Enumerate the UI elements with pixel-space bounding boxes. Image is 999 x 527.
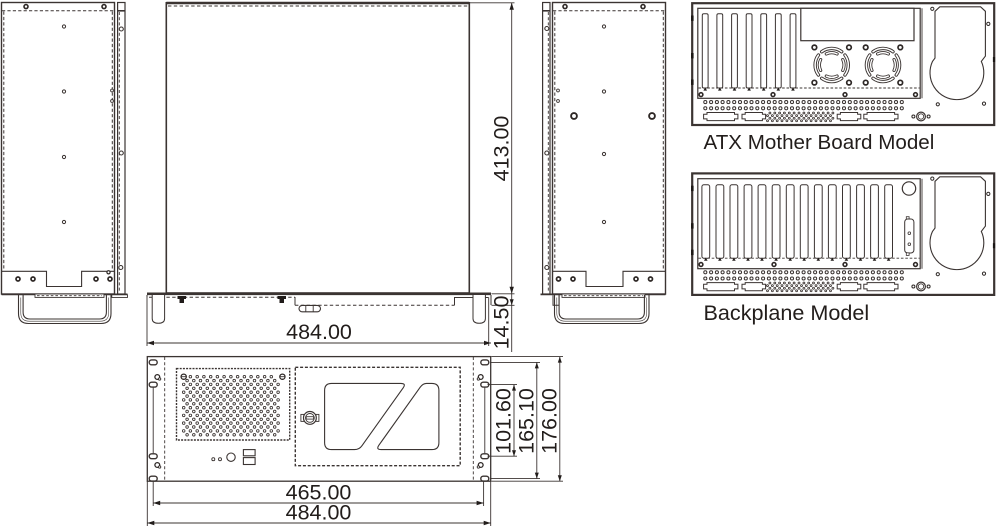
- svg-text:ATX Mother Board Model: ATX Mother Board Model: [704, 131, 935, 154]
- svg-text:101.60: 101.60: [492, 388, 516, 454]
- svg-text:484.00: 484.00: [286, 320, 352, 344]
- svg-text:14.50: 14.50: [490, 296, 514, 350]
- svg-text:Backplane Model: Backplane Model: [704, 300, 870, 325]
- svg-text:165.10: 165.10: [514, 388, 538, 454]
- svg-text:413.00: 413.00: [490, 116, 514, 182]
- svg-text:176.00: 176.00: [537, 388, 561, 454]
- svg-text:484.00: 484.00: [286, 501, 352, 525]
